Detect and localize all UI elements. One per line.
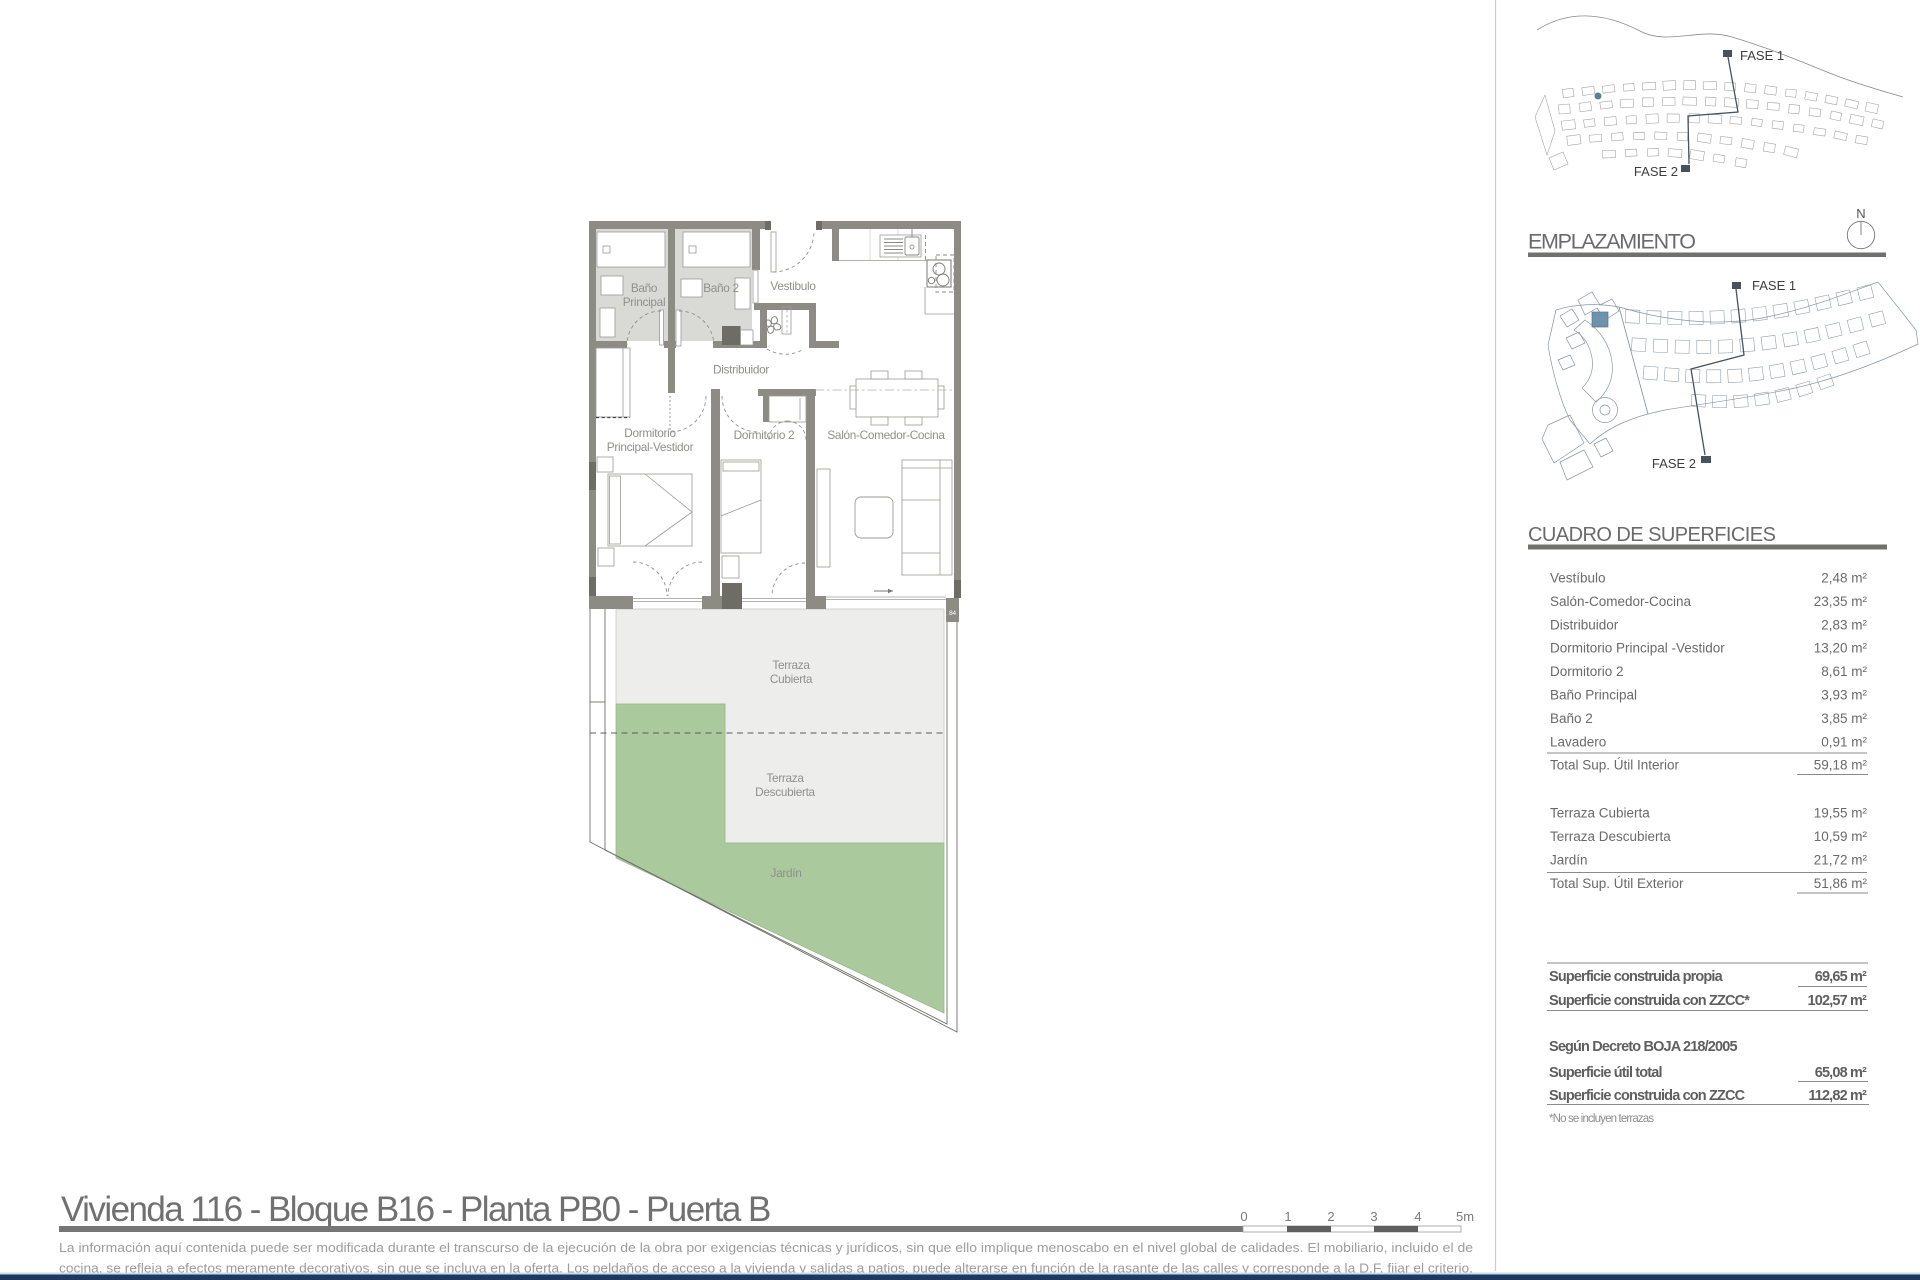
svg-text:51,86 m²: 51,86 m²	[1814, 876, 1868, 891]
svg-text:Distribuidor: Distribuidor	[1550, 617, 1619, 632]
svg-text:Total Sup. Útil Exterior: Total Sup. Útil Exterior	[1550, 876, 1684, 891]
svg-text:Principal: Principal	[623, 295, 666, 309]
svg-text:59,18 m²: 59,18 m²	[1814, 758, 1868, 773]
svg-text:Baño 2: Baño 2	[1550, 711, 1593, 726]
svg-text:1: 1	[1284, 1209, 1291, 1224]
svg-text:69,65 m²: 69,65 m²	[1815, 969, 1867, 985]
svg-text:Terraza Cubierta: Terraza Cubierta	[1550, 806, 1650, 821]
svg-text:2,83 m²: 2,83 m²	[1821, 617, 1867, 632]
svg-text:Distribuidor: Distribuidor	[713, 363, 769, 377]
svg-text:La información aquí contenida: La información aquí contenida puede ser …	[59, 1240, 1473, 1255]
svg-text:Superficie construida con ZZCC: Superficie construida con ZZCC*	[1549, 993, 1750, 1009]
svg-text:Jardín: Jardín	[1550, 853, 1588, 868]
svg-text:Dormitorio: Dormitorio	[624, 426, 676, 440]
svg-text:84: 84	[949, 610, 956, 617]
svg-text:10,59 m²: 10,59 m²	[1814, 829, 1868, 844]
svg-text:23,35 m²: 23,35 m²	[1814, 594, 1868, 609]
svg-text:Superficie construida propia: Superficie construida propia	[1549, 969, 1724, 985]
svg-text:3: 3	[1370, 1209, 1377, 1224]
svg-text:Superficie útil total: Superficie útil total	[1549, 1065, 1662, 1081]
svg-text:3,93 m²: 3,93 m²	[1821, 688, 1867, 703]
svg-text:0,91 m²: 0,91 m²	[1821, 734, 1867, 749]
svg-text:Terraza: Terraza	[772, 658, 810, 672]
svg-text:13,20 m²: 13,20 m²	[1814, 641, 1868, 656]
svg-text:FASE 1: FASE 1	[1752, 278, 1796, 293]
svg-text:Dormitorio 2: Dormitorio 2	[1550, 664, 1624, 679]
svg-text:Baño: Baño	[631, 281, 658, 295]
svg-text:FASE 2: FASE 2	[1634, 164, 1678, 179]
svg-text:65,08 m²: 65,08 m²	[1815, 1065, 1867, 1081]
svg-text:N: N	[1856, 206, 1865, 221]
svg-text:4: 4	[1414, 1209, 1421, 1224]
svg-text:Cubierta: Cubierta	[770, 672, 813, 686]
svg-text:112,82 m²: 112,82 m²	[1808, 1088, 1867, 1104]
svg-text:8,61 m²: 8,61 m²	[1821, 664, 1867, 679]
svg-text:Dormitorio 2: Dormitorio 2	[734, 428, 795, 442]
svg-text:Principal-Vestidor: Principal-Vestidor	[607, 440, 694, 454]
svg-text:2: 2	[1327, 1209, 1334, 1224]
svg-text:Salón-Comedor-Cocina: Salón-Comedor-Cocina	[1550, 594, 1692, 609]
svg-text:Terraza Descubierta: Terraza Descubierta	[1550, 829, 1671, 844]
svg-text:19,55 m²: 19,55 m²	[1814, 806, 1868, 821]
svg-text:Vestíbulo: Vestíbulo	[1550, 571, 1606, 586]
svg-text:CUADRO DE SUPERFICIES: CUADRO DE SUPERFICIES	[1528, 524, 1776, 546]
svg-text:*No se incluyen terrazas: *No se incluyen terrazas	[1549, 1113, 1654, 1125]
svg-text:Vivienda 116 - Bloque B16 - Pl: Vivienda 116 - Bloque B16 - Planta PB0 -…	[61, 1190, 770, 1229]
svg-text:2,48 m²: 2,48 m²	[1821, 571, 1867, 586]
svg-text:Salón-Comedor-Cocina: Salón-Comedor-Cocina	[827, 428, 945, 442]
svg-text:Lavadero: Lavadero	[1550, 734, 1606, 749]
svg-text:Superficie construida con ZZCC: Superficie construida con ZZCC	[1549, 1088, 1746, 1104]
svg-text:102,57 m²: 102,57 m²	[1808, 993, 1867, 1009]
svg-text:Terraza: Terraza	[766, 771, 804, 785]
svg-text:Vestibulo: Vestibulo	[770, 279, 816, 293]
svg-text:3,85 m²: 3,85 m²	[1821, 711, 1867, 726]
svg-text:Descubierta: Descubierta	[755, 785, 815, 799]
svg-text:Baño 2: Baño 2	[703, 281, 739, 295]
svg-text:0: 0	[1240, 1209, 1247, 1224]
svg-text:FASE 2: FASE 2	[1652, 456, 1696, 471]
svg-text:Baño Principal: Baño Principal	[1550, 688, 1637, 703]
svg-text:Dormitorio Principal -Vestidor: Dormitorio Principal -Vestidor	[1550, 641, 1725, 656]
svg-text:5m: 5m	[1456, 1209, 1474, 1224]
svg-text:EMPLAZAMIENTO: EMPLAZAMIENTO	[1528, 230, 1695, 254]
svg-text:Según Decreto BOJA 218/2005: Según Decreto BOJA 218/2005	[1549, 1039, 1737, 1055]
svg-text:Jardín: Jardín	[771, 866, 802, 880]
svg-text:FASE 1: FASE 1	[1740, 48, 1784, 63]
svg-text:21,72 m²: 21,72 m²	[1814, 853, 1868, 868]
svg-text:Total Sup. Útil Interior: Total Sup. Útil Interior	[1550, 758, 1680, 773]
